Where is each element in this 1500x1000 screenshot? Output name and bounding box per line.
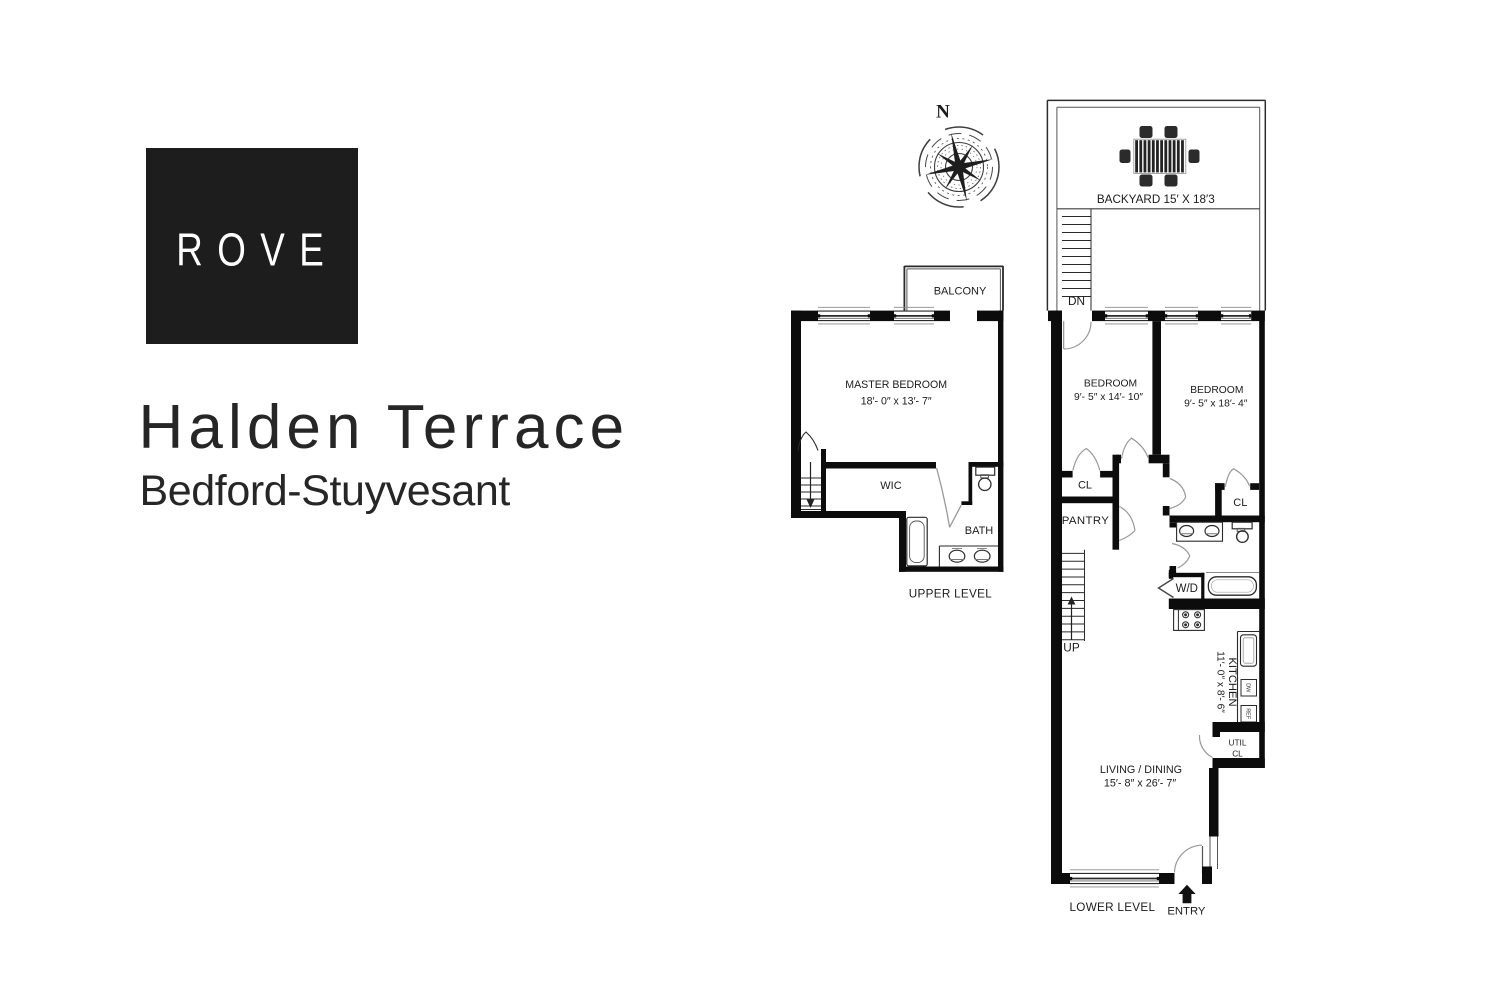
svg-text:W/D: W/D	[1176, 583, 1198, 595]
svg-text:MASTER BEDROOM: MASTER BEDROOM	[845, 379, 947, 391]
svg-text:REF: REF	[1244, 708, 1250, 720]
svg-text:CL: CL	[1232, 749, 1243, 759]
svg-text:DW: DW	[1244, 683, 1250, 693]
svg-text:WIC: WIC	[880, 480, 901, 492]
svg-text:18′- 0″ x 13′- 7″: 18′- 0″ x 13′- 7″	[861, 396, 932, 408]
svg-text:9′- 5″ x 18′- 4″: 9′- 5″ x 18′- 4″	[1184, 398, 1248, 409]
svg-text:ROVE: ROVE	[176, 224, 338, 276]
svg-text:BEDROOM: BEDROOM	[1190, 385, 1243, 396]
svg-text:UP: UP	[1063, 641, 1080, 655]
svg-text:UTIL: UTIL	[1229, 738, 1247, 748]
svg-text:ENTRY: ENTRY	[1167, 906, 1206, 918]
svg-text:BEDROOM: BEDROOM	[1084, 379, 1137, 390]
svg-text:LIVING / DINING: LIVING / DINING	[1100, 764, 1182, 776]
svg-text:BALCONY: BALCONY	[934, 285, 987, 297]
svg-text:15′- 8″ x 26′- 7″: 15′- 8″ x 26′- 7″	[1104, 777, 1176, 789]
svg-text:BACKYARD 15′ X 18′3: BACKYARD 15′ X 18′3	[1097, 193, 1215, 206]
svg-text:KITCHEN: KITCHEN	[1226, 657, 1238, 706]
svg-text:BATH: BATH	[965, 525, 994, 537]
svg-text:11′- 0″ x 8′- 6″: 11′- 0″ x 8′- 6″	[1215, 651, 1226, 713]
svg-text:N: N	[936, 102, 950, 123]
svg-text:PANTRY: PANTRY	[1062, 515, 1110, 527]
svg-text:UPPER LEVEL: UPPER LEVEL	[909, 588, 992, 601]
svg-text:CL: CL	[1233, 497, 1247, 509]
svg-text:DN: DN	[1068, 294, 1085, 308]
svg-text:9′- 5″ x 14′- 10″: 9′- 5″ x 14′- 10″	[1074, 392, 1143, 403]
svg-text:CL: CL	[1078, 480, 1092, 492]
svg-text:LOWER LEVEL: LOWER LEVEL	[1070, 901, 1156, 914]
